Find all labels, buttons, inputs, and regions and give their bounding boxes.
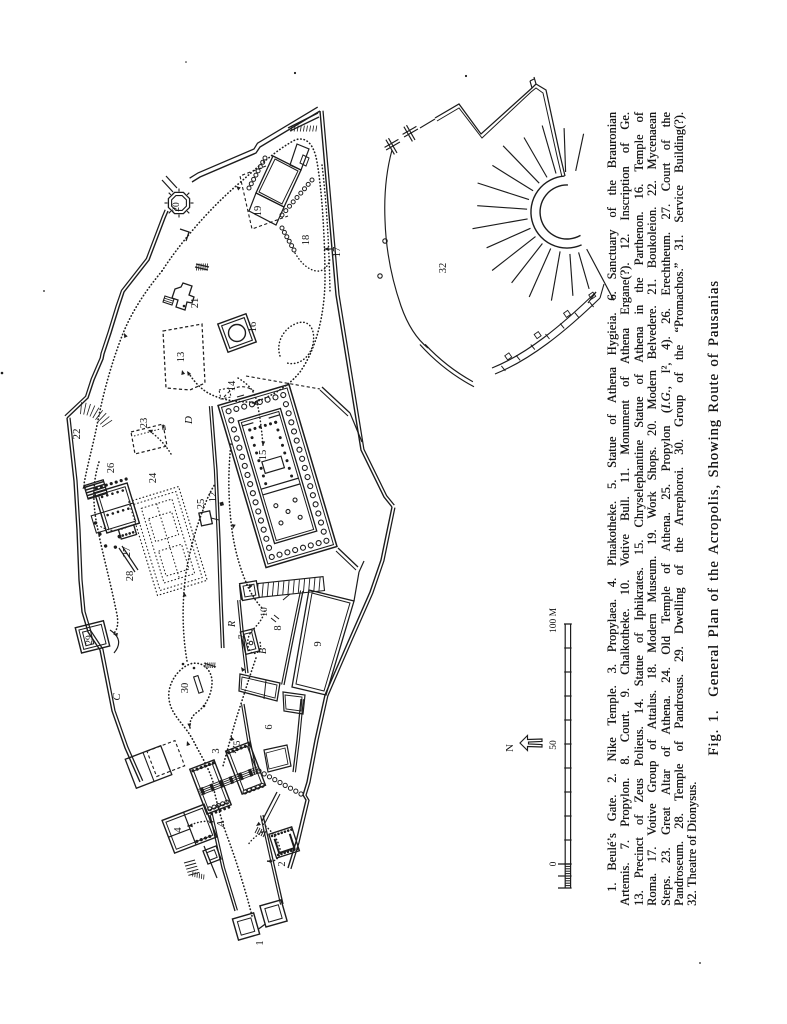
svg-text:C: C	[111, 693, 123, 701]
svg-text:17: 17	[332, 247, 343, 258]
svg-text:30: 30	[180, 683, 191, 694]
svg-text:6: 6	[264, 724, 275, 729]
svg-text:18: 18	[301, 235, 312, 246]
svg-text:9: 9	[313, 641, 324, 646]
svg-text:23: 23	[139, 418, 150, 429]
svg-text:21: 21	[190, 298, 201, 309]
svg-text:12: 12	[208, 492, 219, 503]
svg-text:A: A	[215, 820, 227, 828]
svg-text:0: 0	[549, 861, 559, 866]
svg-text:R: R	[227, 621, 238, 628]
svg-text:19: 19	[253, 206, 264, 217]
svg-text:20: 20	[172, 202, 182, 212]
svg-text:D: D	[183, 416, 195, 425]
svg-text:1: 1	[255, 940, 266, 945]
svg-text:16: 16	[248, 322, 259, 333]
svg-text:24: 24	[148, 472, 159, 483]
svg-text:100 M: 100 M	[549, 607, 559, 633]
svg-text:7: 7	[238, 634, 248, 639]
svg-text:3: 3	[211, 748, 222, 753]
svg-text:4: 4	[173, 827, 184, 833]
svg-text:8: 8	[273, 625, 284, 630]
svg-text:2: 2	[277, 861, 288, 866]
svg-text:29: 29	[85, 635, 95, 645]
svg-text:26: 26	[106, 463, 117, 474]
svg-text:50: 50	[549, 740, 559, 750]
svg-text:15: 15	[258, 450, 269, 461]
svg-text:N: N	[504, 744, 516, 752]
svg-text:32: 32	[438, 263, 449, 274]
svg-text:13: 13	[176, 352, 187, 363]
svg-text:28: 28	[125, 571, 136, 582]
svg-text:22: 22	[71, 429, 83, 440]
